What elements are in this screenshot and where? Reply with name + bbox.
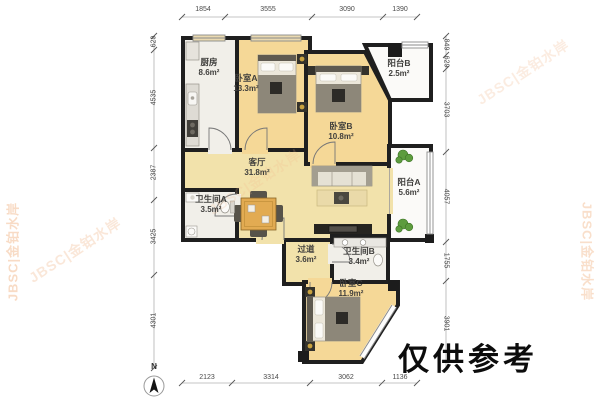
sofa <box>312 166 372 186</box>
dim-right-4: 4057 <box>443 180 450 214</box>
dim-right-3: 3703 <box>443 93 450 127</box>
balcony-a-window <box>427 152 433 234</box>
watermark-text: JBSC|金铂水岸 <box>579 177 598 327</box>
dim-bottom-1: 2123 <box>190 374 224 381</box>
bedroom-b-bed <box>308 66 369 112</box>
dim-left-2: 4535 <box>151 81 158 115</box>
watermark-text: JBSC|金铂水岸 <box>3 177 22 327</box>
rug-coffee-table <box>317 190 367 206</box>
floorplan-page: JBSC|金铂水岸 JBSC|金铂水岸 JBSC|金铂水岸 JBSC|金铂水岸 … <box>0 0 600 400</box>
compass-north-label: N <box>148 362 160 371</box>
dim-left-1: 629 <box>151 25 158 59</box>
dim-top-2: 3555 <box>251 6 285 13</box>
kitchen-furniture <box>186 42 199 146</box>
hallway-floor <box>284 240 332 284</box>
dim-left-5: 4301 <box>151 304 158 338</box>
balcony-b-window <box>402 42 428 48</box>
dim-bottom-3: 3062 <box>329 374 363 381</box>
bedroom-a-window <box>251 35 301 41</box>
tv-cabinet <box>314 224 372 234</box>
compass-icon <box>144 376 164 396</box>
dim-top-3: 3090 <box>330 6 364 13</box>
dim-right-5: 1755 <box>443 244 450 278</box>
dim-left-3: 2387 <box>151 156 158 190</box>
dim-top-4: 1390 <box>383 6 417 13</box>
dim-top-1: 1854 <box>186 6 220 13</box>
dim-left-4: 3425 <box>151 220 158 254</box>
kitchen-window <box>193 35 225 41</box>
bedroom-c-bed <box>305 287 360 351</box>
disclaimer-text: 仅供参考 <box>398 334 538 379</box>
dim-right-2: 629 <box>443 45 450 79</box>
dim-bottom-2: 3314 <box>254 374 288 381</box>
